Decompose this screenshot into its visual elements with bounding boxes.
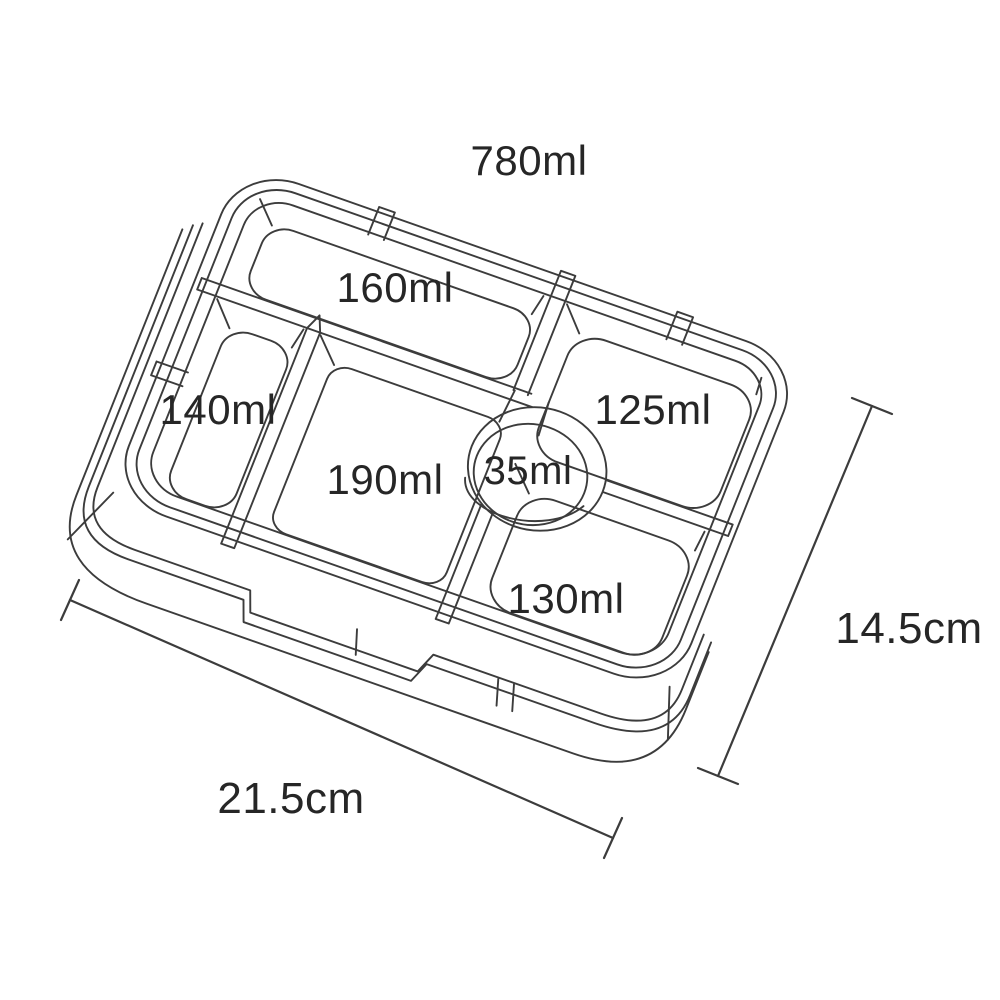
label-center-compartment: 190ml: [327, 459, 444, 501]
label-total-capacity: 780ml: [471, 140, 588, 182]
front-band-tabs: [347, 629, 521, 711]
label-width-dimension: 21.5cm: [217, 777, 364, 821]
label-top-compartment: 160ml: [337, 267, 454, 309]
label-right-compartment: 125ml: [595, 389, 712, 431]
label-bottom-compartment: 130ml: [508, 578, 625, 620]
label-dip-well: 35ml: [484, 451, 573, 491]
dimension-lines: [61, 398, 892, 858]
label-depth-dimension: 14.5cm: [835, 607, 982, 651]
divider-right: [603, 480, 733, 536]
divider-upper-right: [513, 271, 575, 395]
label-left-compartment: 140ml: [160, 389, 277, 431]
dimension-line-depth: [718, 406, 872, 776]
tray-capacity-diagram: 780ml 160ml 140ml 125ml 190ml 35ml 130ml…: [0, 0, 1000, 1000]
